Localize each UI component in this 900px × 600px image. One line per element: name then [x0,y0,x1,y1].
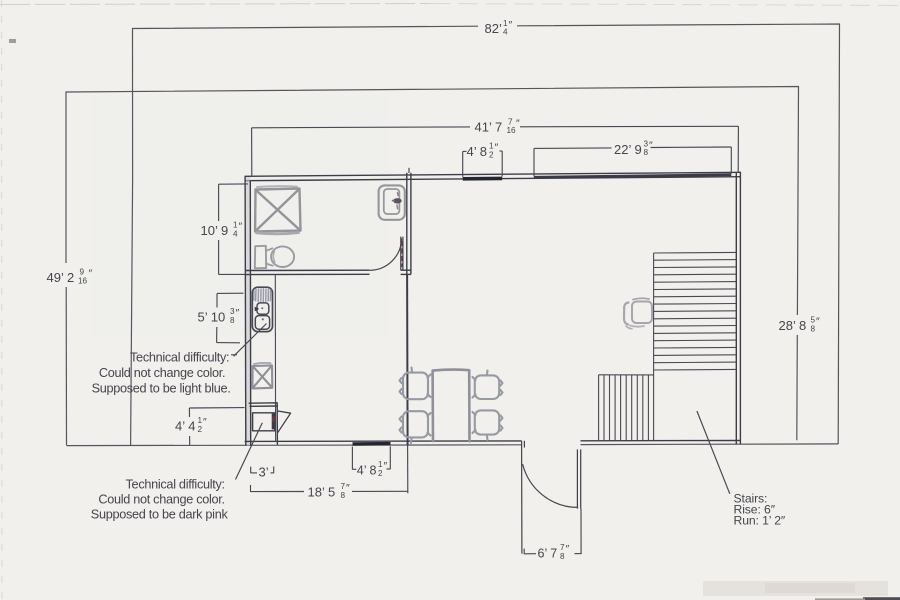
svg-text:82’: 82’ [485,21,502,36]
svg-text:″: ″ [236,307,240,319]
svg-text:14: 14 [503,19,508,37]
svg-text:22’ 9: 22’ 9 [614,142,642,157]
svg-text:4’ 4: 4’ 4 [175,419,195,434]
svg-text:78: 78 [560,543,565,561]
svg-text:5’ 10: 5’ 10 [198,310,226,325]
svg-text:″: ″ [516,117,520,129]
svg-text:″: ″ [495,142,499,154]
svg-text:14: 14 [233,220,238,238]
svg-text:4’ 8: 4’ 8 [357,464,377,478]
svg-text:″: ″ [203,416,207,428]
svg-text:″: ″ [509,19,513,31]
svg-text:″: ″ [239,221,243,233]
svg-text:12: 12 [198,416,203,434]
svg-text:12: 12 [489,141,494,159]
svg-text:″: ″ [89,268,93,280]
svg-text:4’ 8: 4’ 8 [467,144,487,159]
svg-text:78: 78 [341,482,346,500]
svg-text:28’ 8: 28’ 8 [779,318,807,333]
svg-text:″: ″ [346,482,350,494]
svg-text:3’: 3’ [259,465,269,480]
svg-text:49’ 2: 49’ 2 [47,270,75,285]
svg-text:38: 38 [230,307,235,325]
svg-text:6’ 7: 6’ 7 [538,547,558,561]
svg-text:18’ 5: 18’ 5 [308,485,336,500]
svg-text:″: ″ [384,460,388,472]
svg-text:41’ 7: 41’ 7 [475,120,503,135]
svg-text:″: ″ [816,316,820,328]
svg-text:″: ″ [649,140,653,152]
svg-text:″: ″ [566,543,570,555]
svg-text:12: 12 [378,460,383,478]
svg-text:38: 38 [644,139,649,157]
svg-text:10’ 9: 10’ 9 [201,223,229,238]
svg-text:58: 58 [811,315,816,333]
